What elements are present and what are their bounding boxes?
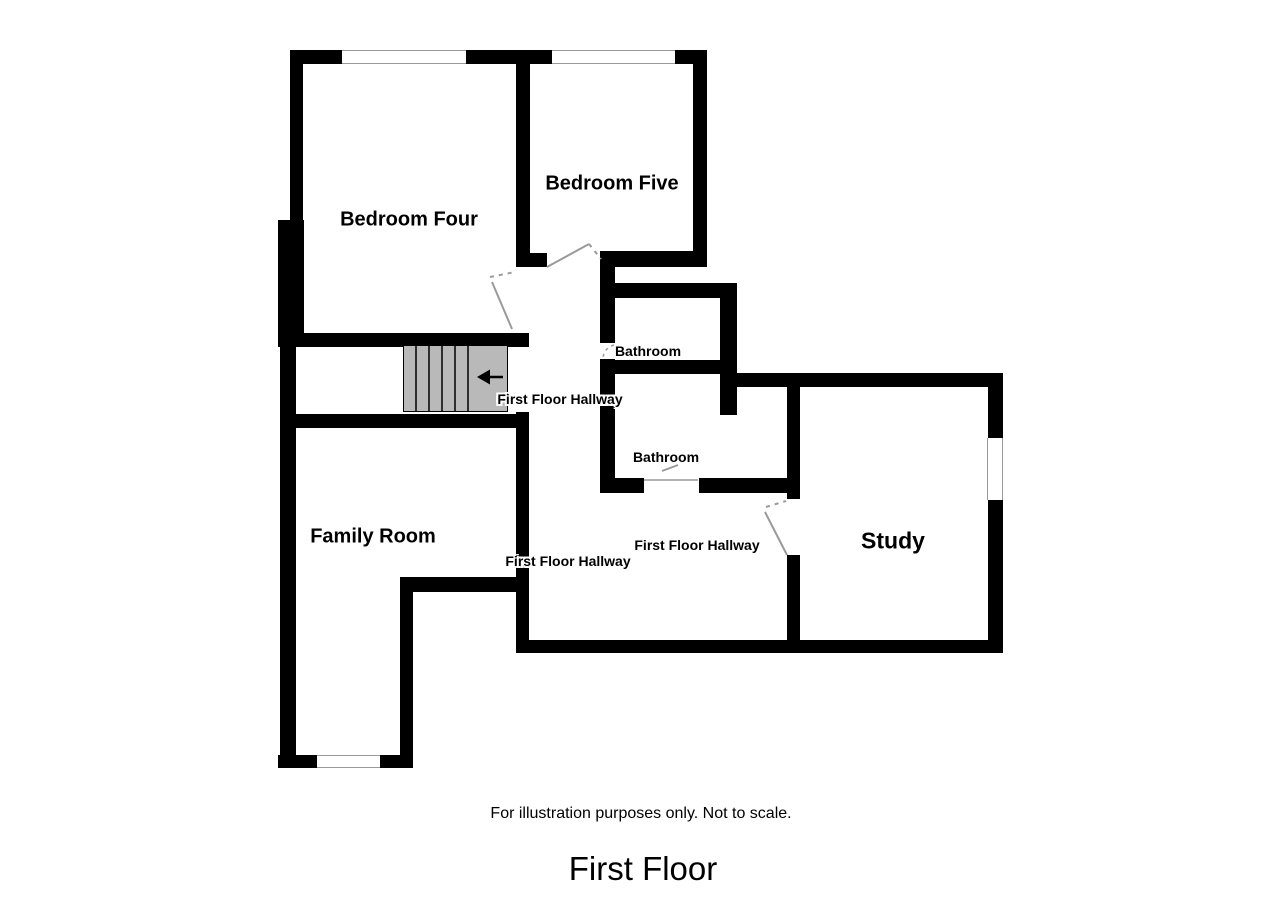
window	[552, 50, 675, 64]
wall	[600, 478, 644, 493]
door-swing-bathroom	[644, 465, 698, 480]
window	[342, 50, 466, 64]
wall	[615, 283, 733, 298]
room-label-bathroom-upper: Bathroom	[615, 343, 681, 359]
wall	[516, 50, 530, 267]
door-swing-bedroom-four	[490, 272, 515, 329]
wall	[516, 640, 1003, 653]
wall	[787, 555, 800, 640]
wall	[290, 50, 303, 225]
wall	[699, 478, 800, 493]
wall	[278, 220, 304, 347]
wall	[530, 253, 547, 267]
wall	[693, 50, 707, 255]
wall	[516, 412, 529, 653]
wall	[278, 755, 317, 768]
door-swing-study	[765, 501, 787, 555]
wall	[600, 359, 615, 493]
wall	[600, 251, 615, 343]
door-opening	[600, 343, 615, 359]
room-label-hallway-mid: First Floor Hallway	[634, 537, 759, 553]
room-label-bathroom-lower: Bathroom	[633, 449, 699, 465]
wall	[400, 577, 528, 592]
wall	[400, 592, 413, 768]
window	[317, 755, 380, 768]
room-label-family-room: Family Room	[310, 526, 436, 549]
window	[987, 438, 1003, 500]
wall	[722, 373, 1003, 387]
wall	[988, 500, 1003, 640]
room-label-hallway-stairs: First Floor Hallway	[497, 391, 622, 407]
room-label-bedroom-five: Bedroom Five	[545, 173, 678, 196]
wall	[380, 755, 413, 768]
room-label-study: Study	[861, 528, 925, 555]
floor-plan: Bedroom Four Bedroom Five Bathroom Bathr…	[0, 0, 1280, 905]
wall	[787, 387, 800, 499]
wall	[720, 283, 737, 415]
wall	[530, 50, 552, 64]
door-swing-bedroom-five	[547, 244, 601, 267]
floor-title: First Floor	[569, 850, 718, 888]
wall	[600, 360, 722, 374]
staircase	[403, 345, 508, 412]
wall	[600, 251, 707, 267]
disclaimer-text: For illustration purposes only. Not to s…	[490, 805, 791, 823]
wall	[283, 414, 518, 428]
room-label-bedroom-four: Bedroom Four	[340, 209, 478, 232]
wall	[280, 347, 296, 768]
room-label-hallway-left: First Floor Hallway	[505, 553, 630, 569]
wall	[988, 373, 1003, 438]
